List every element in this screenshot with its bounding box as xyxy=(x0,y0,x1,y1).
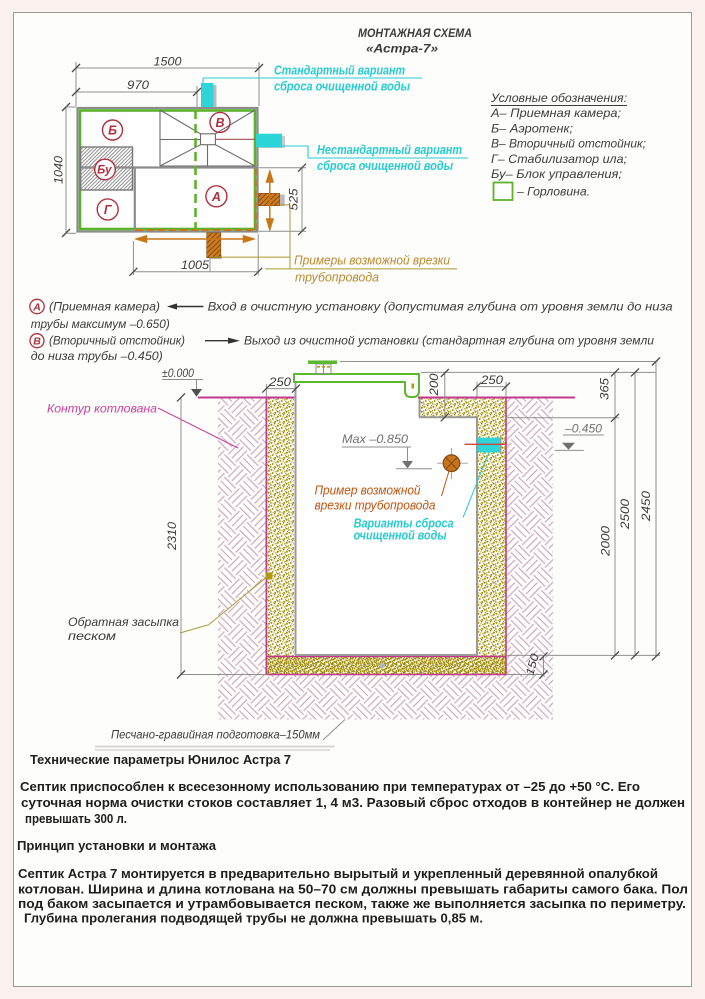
svg-text:под баком засыпается и утрамбо: под баком засыпается и утрамбовывается п… xyxy=(18,897,686,911)
svg-text:970: 970 xyxy=(127,80,150,92)
svg-text:трубы максимум –0.650): трубы максимум –0.650) xyxy=(31,317,170,331)
svg-text:очищенной воды: очищенной воды xyxy=(354,528,447,543)
svg-text:Принцип установки и монтажа: Принцип установки и монтажа xyxy=(17,839,217,853)
svg-text:– Горловина.: – Горловина. xyxy=(516,185,590,199)
svg-text:2450: 2450 xyxy=(641,490,653,522)
svg-text:2310: 2310 xyxy=(167,521,179,551)
svg-text:В– Вторичный отстойник;: В– Вторичный отстойник; xyxy=(491,137,646,151)
svg-text:2500: 2500 xyxy=(620,498,632,530)
svg-text:А: А xyxy=(32,302,41,314)
svg-text:(Приемная камера): (Приемная камера) xyxy=(49,300,160,314)
svg-text:Б– Аэротенк;: Б– Аэротенк; xyxy=(491,122,573,136)
svg-text:котлован. Ширина и длина котло: котлован. Ширина и длина котлована на 50… xyxy=(18,883,688,897)
svg-text:А: А xyxy=(211,190,221,204)
svg-text:сброса очищенной воды: сброса очищенной воды xyxy=(317,158,453,173)
svg-text:1500: 1500 xyxy=(154,57,183,69)
svg-text:«Астра-7»: «Астра-7» xyxy=(366,42,438,56)
svg-text:Песчано-гравийная подготовка–1: Песчано-гравийная подготовка–150мм xyxy=(111,728,320,742)
svg-text:Б: Б xyxy=(108,124,117,138)
svg-text:врезки трубопровода: врезки трубопровода xyxy=(315,498,436,513)
svg-text:МОНТАЖНАЯ СХЕМА: МОНТАЖНАЯ СХЕМА xyxy=(358,26,472,40)
svg-text:Примеры возможной врезки: Примеры возможной врезки xyxy=(294,253,450,268)
svg-text:В: В xyxy=(33,336,41,348)
svg-text:(Вторичный отстойник): (Вторичный отстойник) xyxy=(49,334,185,348)
svg-text:трубопровода: трубопровода xyxy=(295,270,379,285)
svg-text:Технические параметры Юнилос А: Технические параметры Юнилос Астра 7 xyxy=(30,753,291,767)
svg-text:Глубина пролегания подводящей: Глубина пролегания подводящей трубы не д… xyxy=(24,912,483,926)
svg-text:Условные обозначения:: Условные обозначения: xyxy=(490,91,627,105)
svg-text:±0.000: ±0.000 xyxy=(162,368,195,380)
svg-text:Обратная засыпка: Обратная засыпка xyxy=(68,615,179,629)
svg-text:Вход в очистную установку (доп: Вход в очистную установку (допустимая гл… xyxy=(208,300,673,314)
svg-text:250: 250 xyxy=(480,375,504,387)
svg-text:превышать 300 л.: превышать 300 л. xyxy=(25,812,127,826)
svg-text:–0.450: –0.450 xyxy=(564,424,603,436)
svg-text:Нестандартный вариант: Нестандартный вариант xyxy=(317,142,462,157)
svg-text:1005: 1005 xyxy=(181,260,210,272)
svg-text:1040: 1040 xyxy=(54,155,66,184)
svg-text:В: В xyxy=(215,116,224,130)
svg-text:Септик Астра 7 монтируется в п: Септик Астра 7 монтируется в предварител… xyxy=(18,867,658,881)
svg-text:250: 250 xyxy=(268,377,292,389)
svg-text:365: 365 xyxy=(600,377,612,400)
svg-text:Г: Г xyxy=(104,203,113,217)
svg-text:суточная норма очистки стоков: суточная норма очистки стоков составляет… xyxy=(21,796,685,810)
svg-text:Max –0.850: Max –0.850 xyxy=(342,434,409,446)
svg-text:песком: песком xyxy=(68,629,116,643)
svg-text:Г– Стабилизатор ила;: Г– Стабилизатор ила; xyxy=(491,152,627,166)
svg-text:Стандартный вариант: Стандартный вариант xyxy=(274,63,405,78)
svg-text:Выход из очистной установки (с: Выход из очистной установки (стандартная… xyxy=(244,334,654,348)
svg-text:А– Приемная камера;: А– Приемная камера; xyxy=(490,106,621,120)
svg-text:200: 200 xyxy=(429,373,441,397)
svg-text:Контур котлована: Контур котлована xyxy=(47,402,157,416)
svg-text:Септик приспособлен к всесезон: Септик приспособлен к всесезонному испол… xyxy=(20,780,640,794)
svg-text:до низа трубы –0.450): до низа трубы –0.450) xyxy=(31,349,163,363)
svg-text:2000: 2000 xyxy=(601,525,613,557)
svg-text:Пример возможной: Пример возможной xyxy=(315,483,421,498)
svg-text:Бу– Блок управления;: Бу– Блок управления; xyxy=(491,167,622,181)
svg-text:сброса очищенной воды: сброса очищенной воды xyxy=(274,79,410,94)
svg-text:Бу: Бу xyxy=(97,165,112,177)
